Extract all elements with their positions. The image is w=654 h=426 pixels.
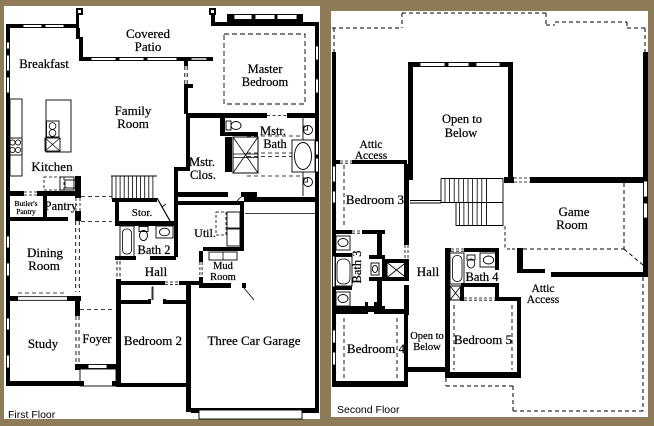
svg-text:Master: Master: [248, 62, 284, 76]
svg-text:Bath 2: Bath 2: [138, 243, 171, 257]
svg-text:Util.: Util.: [194, 226, 216, 240]
svg-text:Below: Below: [445, 126, 478, 140]
svg-text:Room: Room: [117, 116, 149, 131]
svg-text:Stor.: Stor.: [132, 207, 153, 219]
svg-text:Bath 4: Bath 4: [466, 270, 500, 284]
svg-text:Mstr.: Mstr.: [260, 124, 286, 138]
svg-text:Patio: Patio: [135, 39, 162, 54]
svg-text:Room: Room: [28, 258, 60, 273]
svg-text:Room: Room: [210, 272, 236, 283]
svg-text:Study: Study: [28, 336, 59, 351]
svg-text:Hall: Hall: [417, 264, 440, 279]
svg-text:Mud: Mud: [213, 261, 234, 272]
svg-text:Bedroom 4: Bedroom 4: [347, 341, 406, 356]
svg-text:Bedroom 3: Bedroom 3: [346, 192, 404, 207]
svg-text:Pantry: Pantry: [16, 207, 36, 216]
svg-text:Pantry: Pantry: [45, 199, 78, 213]
svg-text:Room: Room: [556, 217, 588, 232]
svg-text:Bath 3: Bath 3: [350, 251, 364, 284]
svg-text:Bedroom: Bedroom: [242, 75, 289, 89]
svg-text:Three Car Garage: Three Car Garage: [207, 333, 300, 348]
svg-text:Second Floor: Second Floor: [337, 404, 400, 416]
svg-text:Breakfast: Breakfast: [19, 56, 69, 71]
svg-text:Below: Below: [413, 342, 441, 353]
svg-text:Bedroom 2: Bedroom 2: [124, 333, 182, 348]
svg-text:Kitchen: Kitchen: [31, 159, 73, 174]
svg-text:Foyer: Foyer: [82, 332, 112, 346]
svg-text:Access: Access: [527, 294, 560, 306]
svg-text:Clos.: Clos.: [190, 168, 216, 182]
svg-text:Open to: Open to: [410, 331, 444, 342]
svg-text:Bath: Bath: [263, 137, 287, 151]
svg-text:First Floor: First Floor: [8, 409, 56, 421]
svg-text:Bedroom 5: Bedroom 5: [454, 332, 512, 347]
svg-text:Open to: Open to: [442, 112, 482, 126]
svg-text:Hall: Hall: [145, 264, 168, 279]
svg-text:Mstr.: Mstr.: [189, 155, 215, 169]
